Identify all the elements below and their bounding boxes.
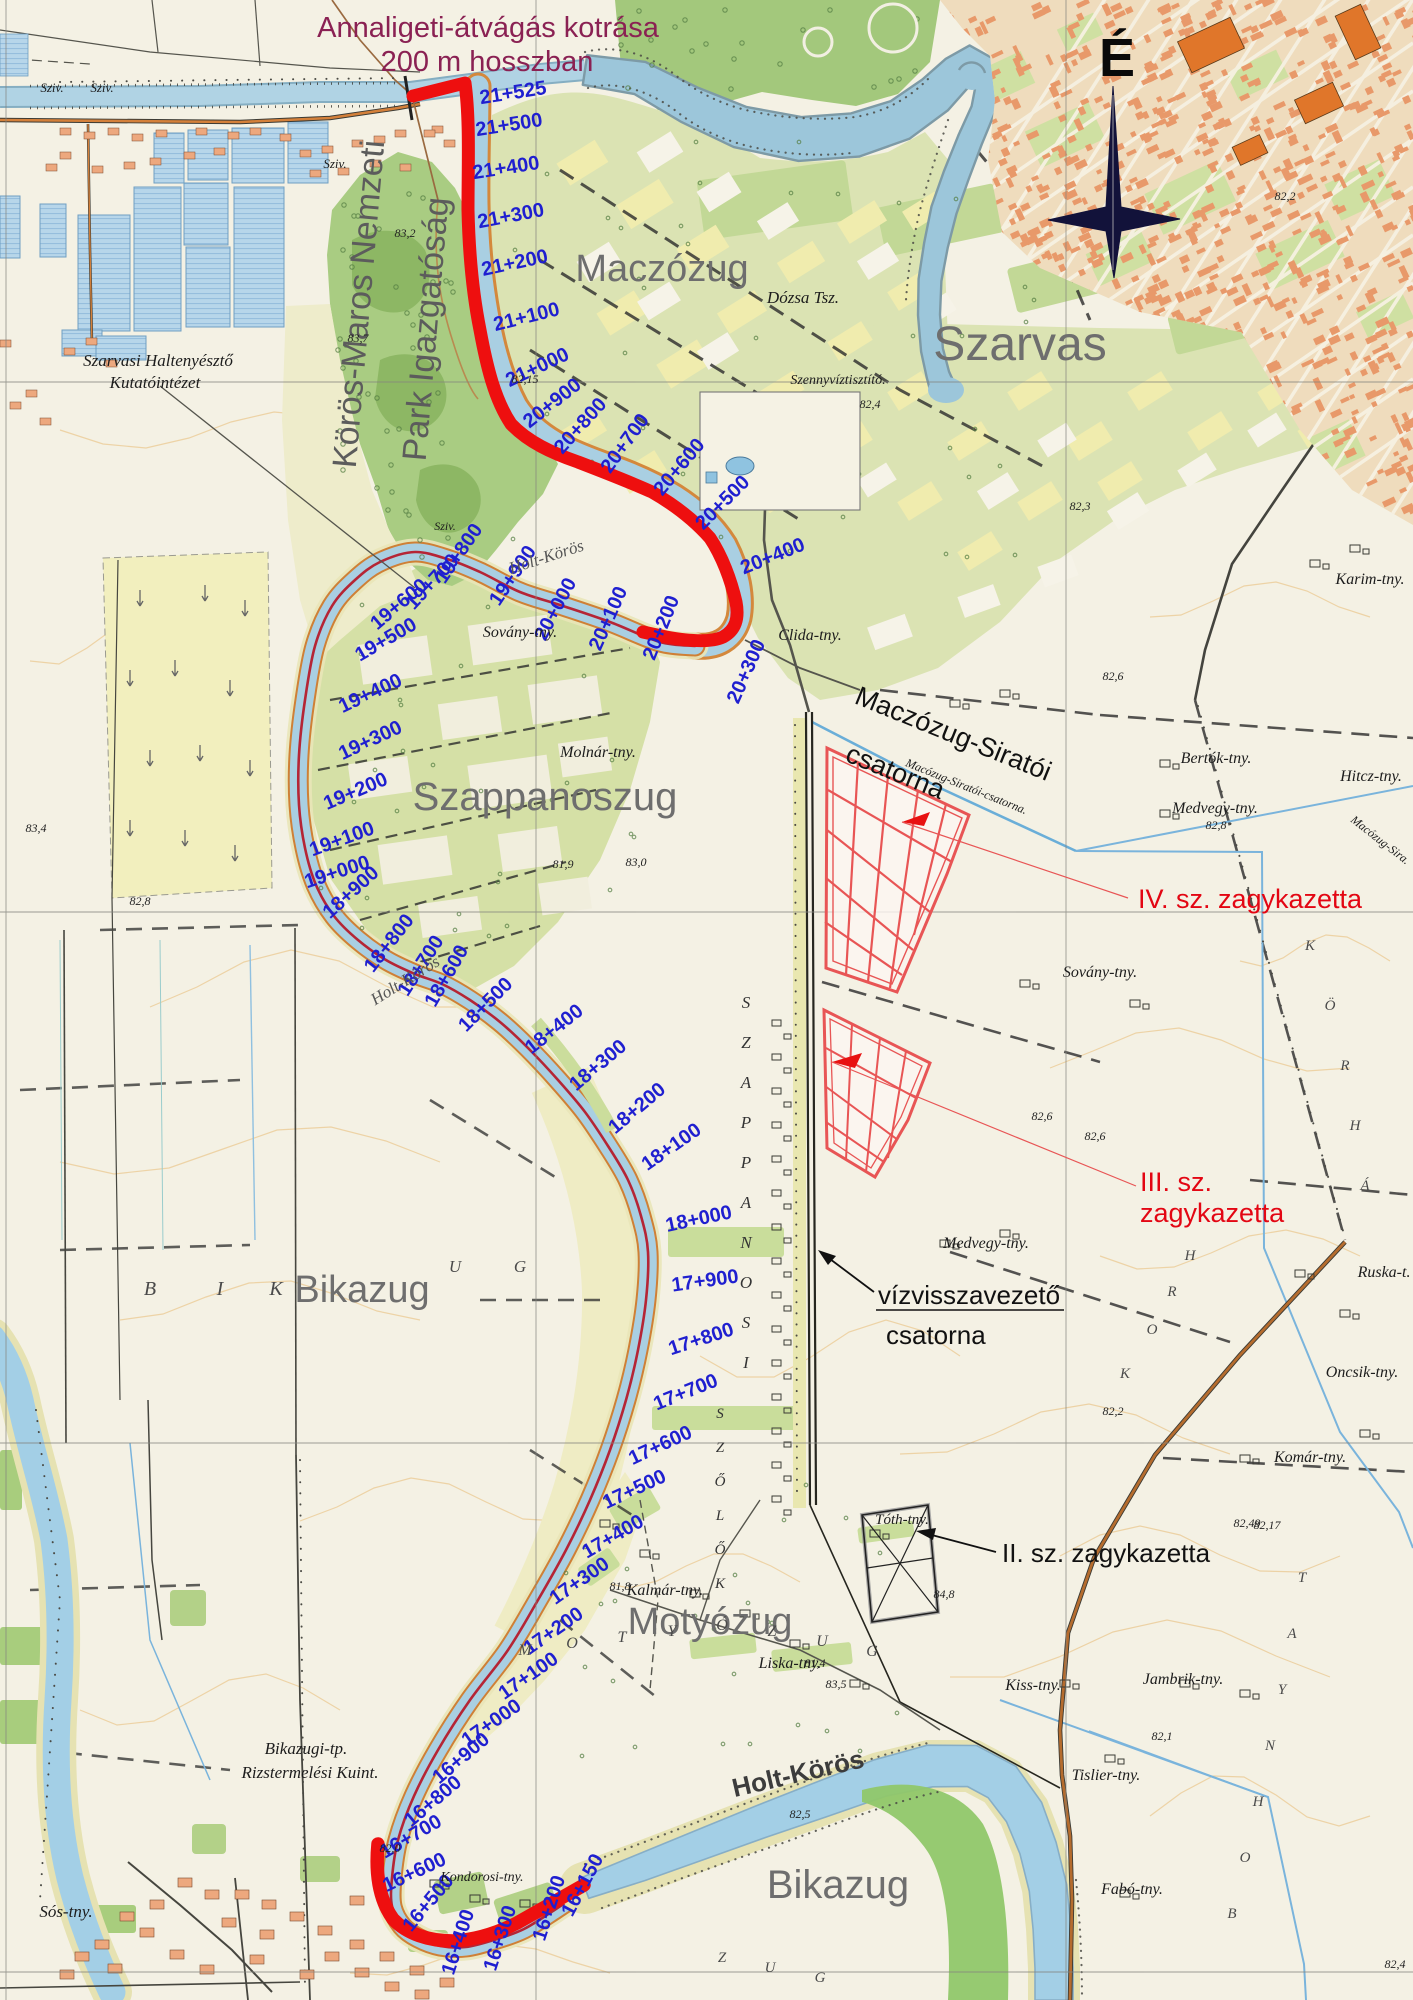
svg-text:Maczózug: Maczózug bbox=[575, 248, 748, 290]
svg-text:III. sz.: III. sz. bbox=[1140, 1167, 1212, 1197]
svg-text:81,4: 81,4 bbox=[805, 1656, 826, 1670]
svg-text:Ó: Ó bbox=[716, 1615, 728, 1634]
svg-text:I: I bbox=[216, 1278, 225, 1300]
svg-text:82,2: 82,2 bbox=[1275, 189, 1296, 203]
svg-text:Kutatóintézet: Kutatóintézet bbox=[109, 373, 202, 392]
svg-text:A: A bbox=[740, 1193, 752, 1212]
svg-text:vízvisszavezető: vízvisszavezető bbox=[878, 1280, 1060, 1310]
svg-text:82,4: 82,4 bbox=[1385, 1957, 1406, 1971]
svg-text:82,1: 82,1 bbox=[1152, 1729, 1173, 1743]
svg-text:82,6: 82,6 bbox=[1032, 1109, 1053, 1123]
svg-text:Tislier-tny.: Tislier-tny. bbox=[1072, 1767, 1141, 1784]
svg-text:Sziv.: Sziv. bbox=[90, 80, 113, 95]
svg-text:II. sz. zagykazetta: II. sz. zagykazetta bbox=[1002, 1538, 1211, 1568]
svg-text:Szappanoszug: Szappanoszug bbox=[413, 775, 678, 819]
svg-text:Ö: Ö bbox=[1325, 997, 1336, 1014]
svg-text:Z: Z bbox=[716, 1440, 725, 1456]
svg-text:K: K bbox=[268, 1278, 284, 1300]
svg-text:R: R bbox=[1339, 1058, 1349, 1074]
svg-text:82,8: 82,8 bbox=[1206, 818, 1227, 832]
svg-text:G: G bbox=[815, 1970, 826, 1986]
svg-text:L: L bbox=[715, 1508, 724, 1524]
svg-text:U: U bbox=[449, 1257, 463, 1276]
svg-text:83,5: 83,5 bbox=[826, 1677, 847, 1691]
svg-text:82,0: 82,0 bbox=[380, 1841, 401, 1855]
svg-text:IV. sz. zagykazetta: IV. sz. zagykazetta bbox=[1138, 884, 1363, 914]
svg-text:H: H bbox=[1184, 1248, 1197, 1264]
svg-text:Sziv.: Sziv. bbox=[323, 156, 346, 171]
svg-text:Komár-tny.: Komár-tny. bbox=[1273, 1449, 1346, 1466]
svg-text:Oncsik-tny.: Oncsik-tny. bbox=[1326, 1364, 1398, 1381]
svg-text:T: T bbox=[618, 1629, 628, 1646]
svg-text:82,8: 82,8 bbox=[130, 894, 151, 908]
svg-text:A: A bbox=[1286, 1626, 1297, 1642]
svg-text:Sós-tny.: Sós-tny. bbox=[39, 1902, 92, 1921]
svg-text:Z: Z bbox=[741, 1033, 751, 1052]
svg-text:83,7: 83,7 bbox=[348, 331, 370, 345]
svg-text:A: A bbox=[740, 1073, 752, 1092]
svg-text:81,8: 81,8 bbox=[610, 1579, 631, 1593]
svg-text:82,6: 82,6 bbox=[1103, 669, 1124, 683]
svg-text:B: B bbox=[144, 1278, 156, 1300]
svg-text:zagykazetta: zagykazetta bbox=[1140, 1198, 1285, 1228]
svg-text:Hitcz-tny.: Hitcz-tny. bbox=[1339, 768, 1402, 785]
svg-text:K: K bbox=[1119, 1366, 1131, 1382]
svg-text:Ő: Ő bbox=[715, 1473, 726, 1490]
svg-text:P: P bbox=[740, 1113, 751, 1132]
svg-text:Á: Á bbox=[1359, 1177, 1370, 1194]
svg-text:K: K bbox=[714, 1576, 726, 1592]
svg-text:P: P bbox=[740, 1153, 751, 1172]
svg-text:H: H bbox=[1349, 1118, 1362, 1134]
svg-text:N: N bbox=[739, 1233, 753, 1252]
svg-text:U: U bbox=[765, 1960, 777, 1976]
svg-text:200 m hosszban: 200 m hosszban bbox=[381, 46, 594, 78]
svg-text:Medvegy-tny.: Medvegy-tny. bbox=[942, 1235, 1029, 1252]
svg-text:Annaligeti-átvágás kotrása: Annaligeti-átvágás kotrása bbox=[317, 12, 660, 44]
svg-text:Molnár-tny.: Molnár-tny. bbox=[559, 744, 636, 761]
svg-text:Kalmár-tny.: Kalmár-tny. bbox=[626, 1582, 704, 1599]
svg-text:Z: Z bbox=[718, 1950, 727, 1966]
svg-text:É: É bbox=[1099, 28, 1135, 88]
svg-text:82,5: 82,5 bbox=[790, 1807, 811, 1821]
svg-text:Sovány-tny.: Sovány-tny. bbox=[1063, 964, 1137, 981]
svg-text:Ő: Ő bbox=[715, 1541, 726, 1558]
svg-text:U: U bbox=[816, 1633, 829, 1650]
svg-text:S: S bbox=[742, 993, 751, 1012]
svg-text:Fabó-tny.: Fabó-tny. bbox=[1100, 1881, 1163, 1898]
svg-text:Szarvas: Szarvas bbox=[933, 318, 1106, 371]
svg-text:Medvegy-tny.: Medvegy-tny. bbox=[1171, 800, 1258, 817]
svg-text:G: G bbox=[866, 1643, 878, 1660]
svg-text:Z: Z bbox=[768, 1623, 778, 1640]
svg-text:H: H bbox=[1252, 1794, 1265, 1810]
svg-text:Jambrik-tny.: Jambrik-tny. bbox=[1143, 1671, 1223, 1688]
svg-text:Szennyvíztisztító.: Szennyvíztisztító. bbox=[790, 373, 885, 388]
svg-text:84,8: 84,8 bbox=[934, 1587, 955, 1601]
svg-text:82,6: 82,6 bbox=[1085, 1129, 1106, 1143]
svg-text:Bertók-tny.: Bertók-tny. bbox=[1181, 750, 1252, 767]
svg-text:Bikazugi-tp.: Bikazugi-tp. bbox=[265, 1739, 348, 1758]
svg-text:G: G bbox=[514, 1257, 526, 1276]
svg-text:Rizstermelési Kuint.: Rizstermelési Kuint. bbox=[241, 1763, 379, 1782]
svg-text:82,17: 82,17 bbox=[1254, 1518, 1282, 1532]
svg-text:K: K bbox=[1304, 938, 1316, 954]
svg-text:S: S bbox=[716, 1406, 724, 1422]
svg-text:Sovány-tny.: Sovány-tny. bbox=[483, 624, 557, 641]
svg-text:O: O bbox=[1147, 1322, 1158, 1338]
svg-text:Kondorosi-tny.: Kondorosi-tny. bbox=[439, 1870, 523, 1885]
svg-text:82,15: 82,15 bbox=[512, 372, 539, 386]
svg-text:B: B bbox=[1227, 1906, 1236, 1922]
svg-text:Bikazug: Bikazug bbox=[294, 1269, 429, 1311]
svg-text:Karim-tny.: Karim-tny. bbox=[1335, 571, 1405, 588]
svg-text:82,4: 82,4 bbox=[860, 397, 881, 411]
svg-text:N: N bbox=[1264, 1738, 1276, 1754]
svg-text:Szarvasi Haltenyésztő: Szarvasi Haltenyésztő bbox=[83, 351, 234, 370]
svg-text:Sziv.: Sziv. bbox=[40, 80, 63, 95]
svg-text:R: R bbox=[1166, 1284, 1176, 1300]
svg-text:Bikazug: Bikazug bbox=[767, 1863, 909, 1907]
svg-text:O: O bbox=[566, 1635, 578, 1652]
svg-text:Clida-tny.: Clida-tny. bbox=[778, 627, 842, 644]
svg-text:82,2: 82,2 bbox=[1103, 1404, 1124, 1418]
svg-text:83,2: 83,2 bbox=[395, 226, 416, 240]
svg-text:Kiss-tny.: Kiss-tny. bbox=[1004, 1677, 1061, 1694]
svg-text:83,4: 83,4 bbox=[26, 821, 47, 835]
svg-text:Sziv.: Sziv. bbox=[434, 519, 455, 533]
svg-text:83,0: 83,0 bbox=[626, 855, 647, 869]
svg-text:csatorna: csatorna bbox=[886, 1320, 986, 1350]
svg-text:O: O bbox=[740, 1273, 752, 1292]
svg-text:O: O bbox=[1240, 1850, 1251, 1866]
svg-text:M: M bbox=[517, 1642, 533, 1659]
svg-text:S: S bbox=[742, 1313, 751, 1332]
svg-text:81,9: 81,9 bbox=[553, 857, 574, 871]
svg-text:Dózsa Tsz.: Dózsa Tsz. bbox=[766, 288, 839, 307]
svg-text:Tóth-tny.: Tóth-tny. bbox=[875, 1512, 929, 1528]
svg-text:82,3: 82,3 bbox=[1070, 499, 1091, 513]
svg-text:Ruska-t.: Ruska-t. bbox=[1357, 1264, 1411, 1281]
